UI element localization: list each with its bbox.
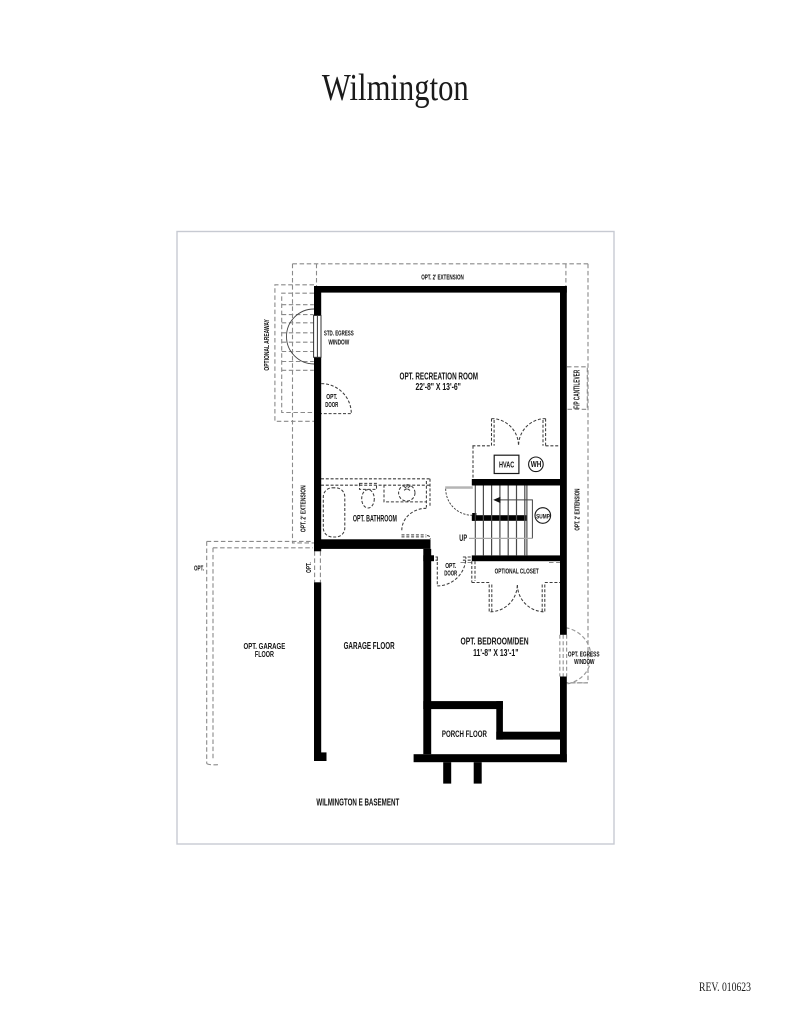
svg-text:DOOR: DOOR — [325, 401, 338, 410]
svg-text:WINDOW: WINDOW — [574, 659, 595, 666]
svg-text:SUMP: SUMP — [536, 514, 550, 521]
svg-text:Wilmington: Wilmington — [322, 67, 469, 109]
svg-text:OPTIONAL CLOSET: OPTIONAL CLOSET — [495, 567, 539, 575]
svg-text:OPT.: OPT. — [194, 565, 204, 573]
svg-text:REV. 010623: REV. 010623 — [699, 981, 751, 995]
svg-text:WINDOW: WINDOW — [328, 339, 349, 347]
svg-text:STD. EGRESS: STD. EGRESS — [324, 330, 354, 339]
svg-text:F/P CANTILEVER: F/P CANTILEVER — [574, 370, 583, 409]
svg-text:GARAGE FLOOR: GARAGE FLOOR — [344, 639, 396, 651]
svg-text:DOOR: DOOR — [444, 569, 457, 578]
svg-text:PORCH FLOOR: PORCH FLOOR — [442, 729, 487, 740]
svg-text:HVAC: HVAC — [499, 461, 514, 469]
svg-text:OPT. BATHROOM: OPT. BATHROOM — [353, 513, 397, 524]
svg-text:WH: WH — [531, 459, 542, 469]
svg-text:11'-8" X 13'-1": 11'-8" X 13'-1" — [473, 647, 518, 659]
svg-text:FLOOR: FLOOR — [255, 650, 274, 660]
svg-text:OPT. 2' EXTENSION: OPT. 2' EXTENSION — [575, 489, 582, 531]
svg-text:OPT. BEDROOM/DEN: OPT. BEDROOM/DEN — [461, 635, 529, 647]
svg-text:OPT. 2' EXTENSION: OPT. 2' EXTENSION — [300, 485, 308, 532]
svg-text:OPTIONAL AREAWAY: OPTIONAL AREAWAY — [263, 319, 271, 371]
svg-text:OPT. EGRESS: OPT. EGRESS — [568, 652, 600, 659]
svg-text:OPT.: OPT. — [305, 562, 313, 573]
svg-text:22'-8" X 13'-6": 22'-8" X 13'-6" — [416, 380, 461, 392]
svg-text:UP: UP — [459, 532, 467, 543]
svg-text:OPT. 2' EXTENSION: OPT. 2' EXTENSION — [421, 275, 464, 282]
svg-text:WILMINGTON E BASEMENT: WILMINGTON E BASEMENT — [316, 796, 399, 808]
